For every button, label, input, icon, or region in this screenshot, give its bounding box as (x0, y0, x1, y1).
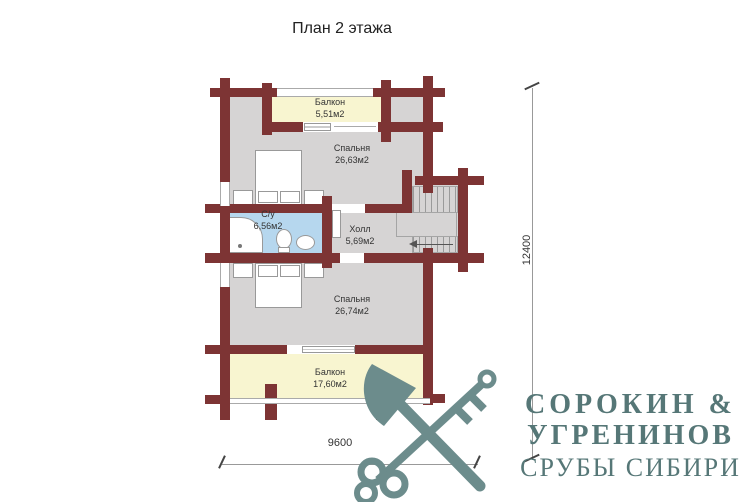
room-name: Спальня (312, 142, 392, 154)
nightstand-icon (304, 190, 324, 205)
wall-segment (378, 122, 443, 132)
room-label-bedroom-bottom: Спальня 26,74м2 (312, 293, 392, 317)
nightstand-icon (233, 190, 253, 205)
room-name: С/у (240, 208, 296, 220)
balcony-door-icon (304, 123, 331, 131)
wall-segment (402, 170, 412, 213)
logo-text-line3: СРУБЫ СИБИРИ (508, 453, 753, 483)
wall-segment (205, 395, 220, 404)
stairs-upper-flight (412, 186, 458, 213)
wall-segment (381, 80, 391, 142)
sink-icon (296, 235, 315, 250)
room-name: Спальня (312, 293, 392, 305)
dimension-height-label: 12400 (521, 220, 533, 280)
wall-segment (220, 78, 230, 420)
shower-drain-icon (238, 244, 242, 248)
toilet-icon (276, 229, 292, 249)
window (220, 263, 230, 287)
nightstand-icon (233, 263, 253, 278)
pillow-icon (280, 265, 300, 277)
room-label-hall: Холл 5,69м2 (332, 223, 388, 247)
logo-text-line2: УГРЕНИНОВ (508, 420, 753, 452)
room-name: Холл (332, 223, 388, 235)
crossed-axe-and-key-icon (350, 360, 518, 502)
floor-plan-page: План 2 этажа (0, 0, 753, 502)
logo-text-line1: СОРОКИН & (508, 389, 753, 421)
room-area: 6,56м2 (240, 220, 296, 232)
pillow-icon (258, 265, 278, 277)
stair-landing (396, 212, 457, 237)
balcony-door-icon (302, 346, 355, 353)
window-glazing-line (334, 126, 376, 127)
room-area: 26,63м2 (312, 154, 392, 166)
window (220, 182, 230, 206)
stair-direction-arrow (417, 244, 453, 245)
room-area: 5,69м2 (332, 235, 388, 247)
pillow-icon (258, 191, 278, 203)
door-opening (340, 253, 364, 263)
wall-segment (415, 176, 484, 185)
room-label-bathroom: С/у 6,56м2 (240, 208, 296, 232)
room-label-bedroom-top: Спальня 26,63м2 (312, 142, 392, 166)
dimension-tick (218, 455, 226, 469)
room-label-balcony-top: Балкон 5,51м2 (292, 96, 368, 120)
room-area: 5,51м2 (292, 108, 368, 120)
room-area: 26,74м2 (312, 305, 392, 317)
page-title: План 2 этажа (282, 20, 402, 38)
room-name: Балкон (292, 96, 368, 108)
wall-segment (262, 122, 303, 132)
pillow-icon (280, 191, 300, 203)
wall-segment (205, 204, 412, 213)
nightstand-icon (304, 263, 324, 278)
stair-arrow-head (409, 240, 417, 248)
